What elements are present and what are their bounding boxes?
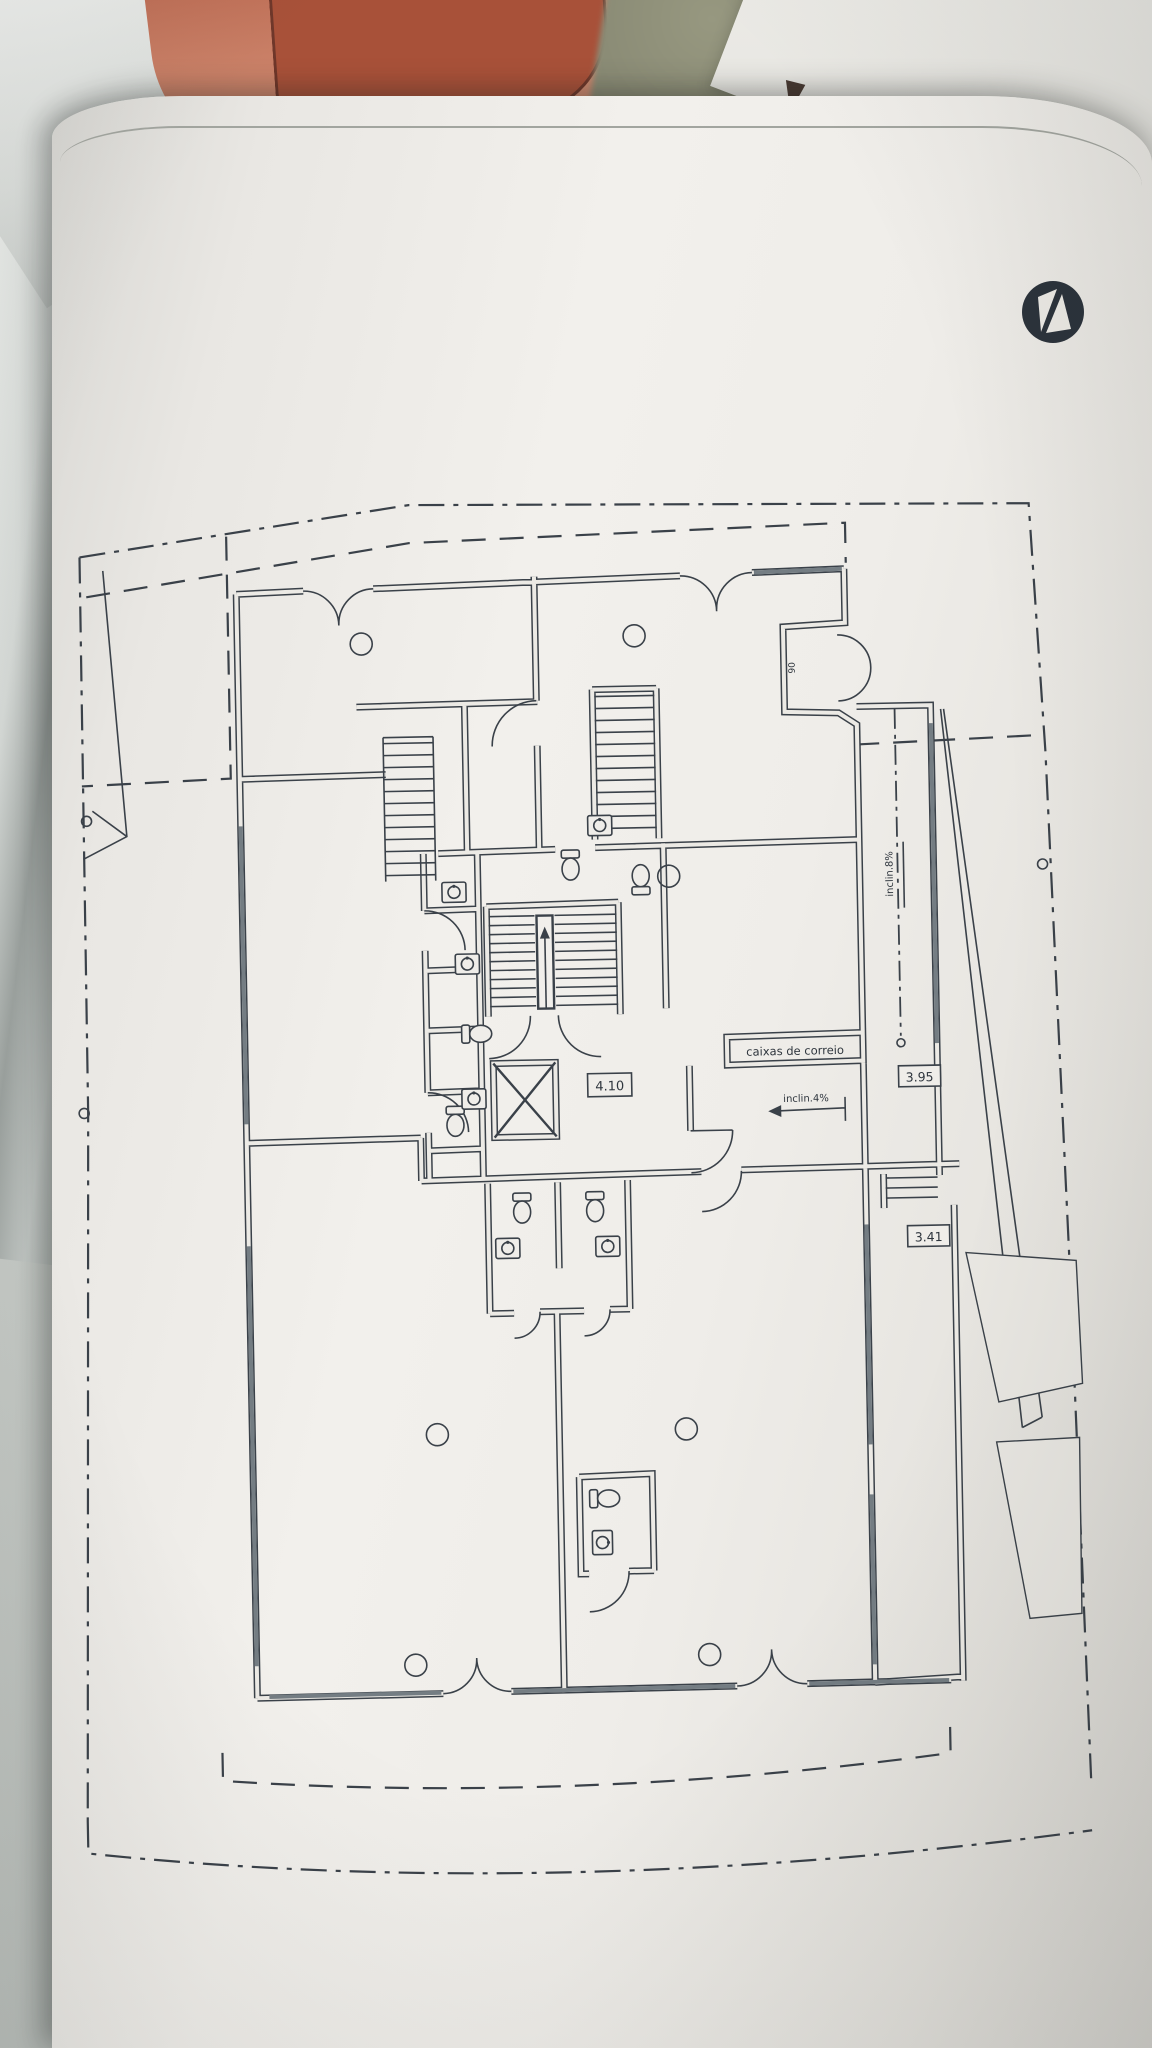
- door-swing-arcs: [303, 570, 890, 1696]
- entry-door-width-label: 90: [788, 662, 798, 674]
- ramp-slope-label: inclin.4%: [783, 1093, 829, 1105]
- staircase-upper-middle: [594, 695, 657, 828]
- dimension-box-ramp-lower: 3.41: [907, 1225, 949, 1247]
- building-walls: [236, 567, 969, 1698]
- staircase-ramp-corridor: [886, 1177, 938, 1198]
- svg-text:4.10: 4.10: [595, 1079, 624, 1095]
- side-slope-label: inclin.8%: [884, 851, 896, 897]
- dimension-box-hall: 4.10: [587, 1073, 631, 1097]
- floor-plan-drawing: caixas de correio inclin.4% inclin.8% 90…: [0, 0, 1152, 2048]
- setback-line: [77, 519, 1059, 1795]
- staircase-upper-left: [383, 737, 436, 882]
- svg-text:3.41: 3.41: [915, 1229, 943, 1245]
- paper-fold-shapes: [966, 1250, 1087, 1619]
- svg-text:3.95: 3.95: [906, 1069, 934, 1085]
- staircase-main-core: [488, 914, 618, 1009]
- property-boundary-line: [63, 492, 1093, 1881]
- architect-logo-icon: [1022, 281, 1084, 343]
- elevator-shaft: [493, 1062, 556, 1137]
- photo-of-floor-plan: 25: [0, 0, 1152, 2048]
- sink-icons: [441, 815, 626, 1557]
- dimension-box-ramp-upper: 3.95: [898, 1065, 940, 1087]
- mailboxes-label: caixas de correio: [746, 1043, 844, 1059]
